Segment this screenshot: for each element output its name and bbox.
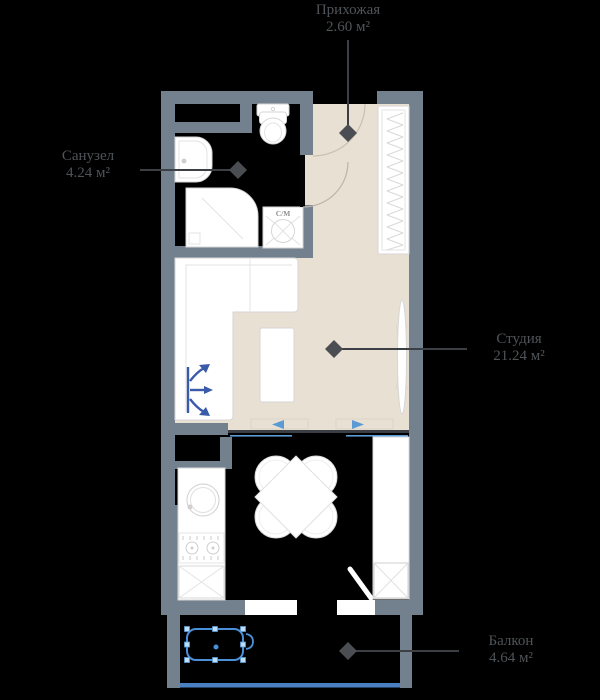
kitchen-sink[interactable]	[187, 484, 219, 516]
window-to-balcony-right	[337, 600, 375, 615]
hallway-label: Прихожая 2.60 м²	[288, 2, 408, 36]
studio-name: Студия	[496, 331, 541, 347]
shaft-niche-kitchen	[175, 437, 220, 461]
window-to-balcony-left	[245, 600, 297, 615]
balcony-glazing	[180, 683, 400, 688]
washing-machine[interactable]: С/М	[263, 207, 303, 248]
sliding-track	[228, 430, 409, 433]
bathroom-name: Санузел	[62, 148, 114, 164]
balcony-name: Балкон	[489, 633, 534, 649]
toilet[interactable]	[257, 104, 289, 144]
balcony-area: 4.64 м²	[461, 650, 561, 667]
bathroom-sink[interactable]	[175, 137, 212, 182]
wall-segment	[161, 91, 313, 104]
wall-segment	[240, 104, 252, 133]
floor-plan-canvas: С/М	[0, 0, 600, 700]
wall-segment	[161, 423, 228, 435]
shower-cabin[interactable]	[186, 188, 258, 247]
wall-segment	[161, 505, 178, 615]
wardrobe[interactable]	[378, 106, 409, 254]
hallway-area: 2.60 м²	[288, 19, 408, 36]
wall-segment	[300, 104, 313, 155]
tall-cabinet-column[interactable]	[373, 437, 409, 599]
wall-segment	[220, 437, 232, 469]
wall-segment	[167, 615, 180, 688]
shaft-niche-bathroom	[175, 104, 240, 122]
balcony-door-opening	[297, 600, 337, 615]
studio-label: Студия 21.24 м²	[469, 331, 569, 365]
coffee-table[interactable]	[260, 328, 294, 402]
bathroom-label: Санузел 4.24 м²	[38, 148, 138, 182]
balcony-label: Балкон 4.64 м²	[461, 633, 561, 667]
washing-machine-label: С/М	[276, 209, 291, 218]
studio-area: 21.24 м²	[469, 348, 569, 365]
hallway-name: Прихожая	[316, 2, 380, 18]
dining-set[interactable]	[255, 456, 337, 538]
wall-segment	[409, 91, 423, 615]
kitchen-appliance-cabinet[interactable]	[179, 566, 224, 598]
bathroom-area: 4.24 м²	[38, 165, 138, 182]
bathroom-door-floor-patch	[304, 155, 313, 206]
